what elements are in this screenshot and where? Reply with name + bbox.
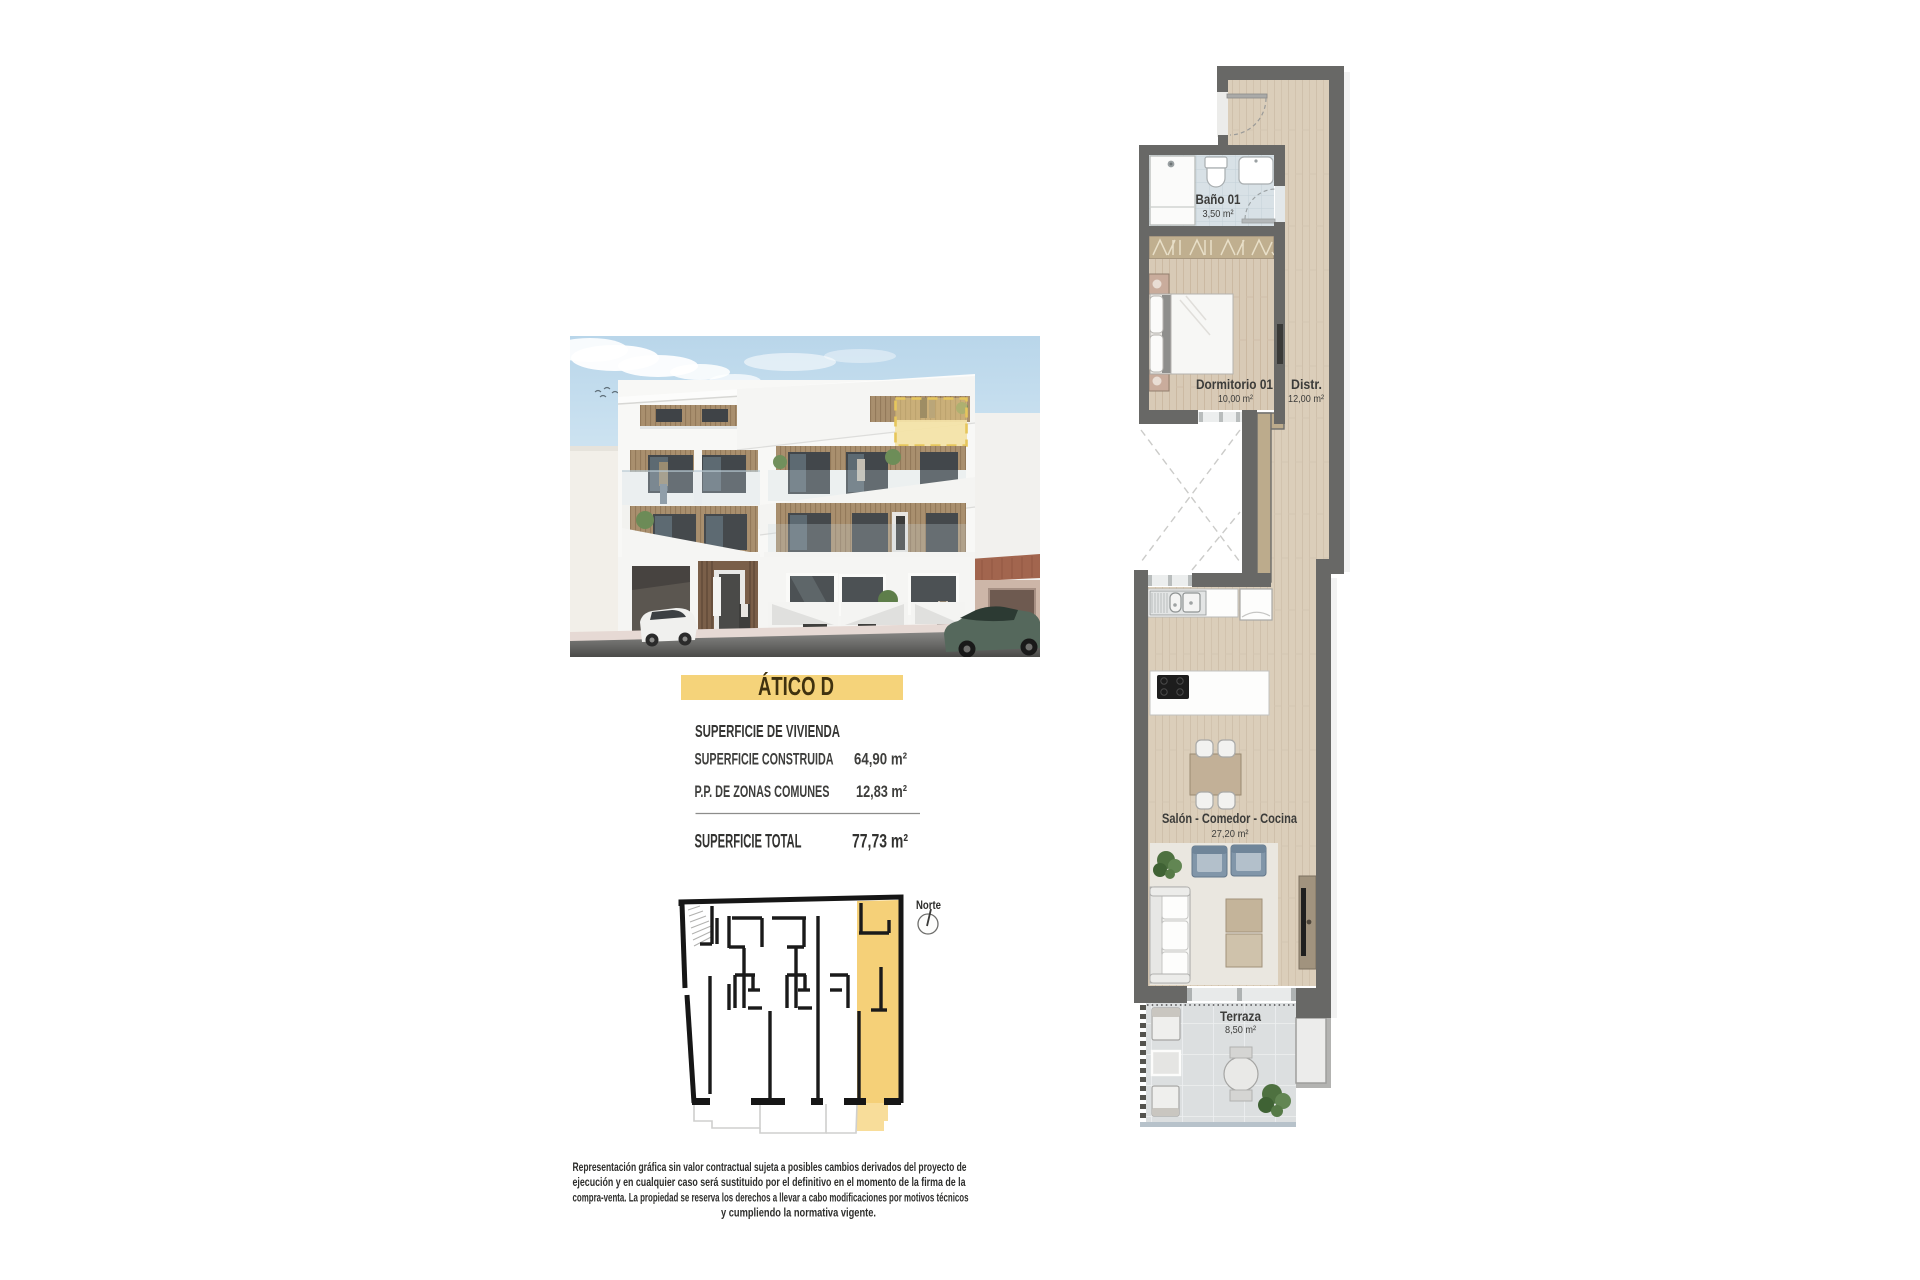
svg-text:12,00 m²: 12,00 m² xyxy=(1288,393,1324,405)
svg-text:compra-venta. La propiedad se: compra-venta. La propiedad se reserva lo… xyxy=(573,1190,969,1204)
svg-text:3,50 m²: 3,50 m² xyxy=(1203,208,1234,220)
svg-text:Distr.: Distr. xyxy=(1291,377,1322,392)
svg-text:Salón - Comedor - Cocina: Salón - Comedor - Cocina xyxy=(1162,811,1297,826)
svg-text:Dormitorio 01: Dormitorio 01 xyxy=(1196,377,1273,392)
svg-text:Norte: Norte xyxy=(916,900,941,912)
svg-text:ÁTICO D: ÁTICO D xyxy=(758,671,834,701)
svg-text:SUPERFICIE DE VIVIENDA: SUPERFICIE DE VIVIENDA xyxy=(695,721,840,741)
svg-text:SUPERFICIE TOTAL: SUPERFICIE TOTAL xyxy=(695,831,802,853)
svg-text:64,90 m²: 64,90 m² xyxy=(854,750,907,769)
svg-text:77,73 m²: 77,73 m² xyxy=(852,831,908,853)
svg-text:8,50 m²: 8,50 m² xyxy=(1225,1024,1256,1036)
svg-text:SUPERFICIE CONSTRUIDA: SUPERFICIE CONSTRUIDA xyxy=(695,750,834,769)
svg-text:Representación gráfica sin val: Representación gráfica sin valor contrac… xyxy=(573,1160,967,1174)
svg-text:P.P. DE ZONAS COMUNES: P.P. DE ZONAS COMUNES xyxy=(695,782,830,801)
svg-text:ejecución y en cualquier caso: ejecución y en cualquier caso será susti… xyxy=(573,1175,966,1189)
svg-text:Baño 01: Baño 01 xyxy=(1196,192,1241,207)
svg-text:Terraza: Terraza xyxy=(1220,1008,1261,1024)
svg-text:27,20 m²: 27,20 m² xyxy=(1212,828,1249,840)
svg-text:12,83 m²: 12,83 m² xyxy=(856,782,907,801)
svg-text:y cumpliendo la normativa vige: y cumpliendo la normativa vigente. xyxy=(721,1206,876,1220)
svg-text:10,00 m²: 10,00 m² xyxy=(1218,393,1253,405)
